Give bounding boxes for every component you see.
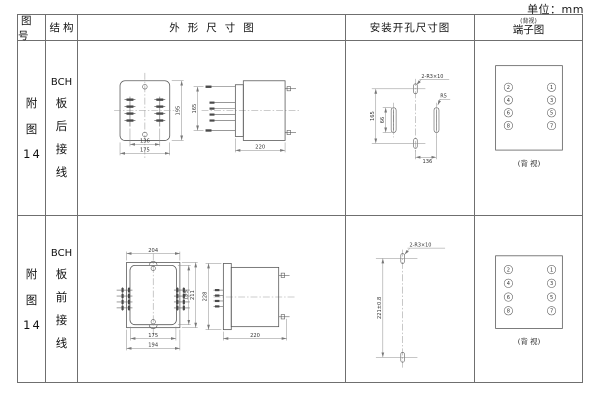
header-outline: 外形尺寸图 — [78, 15, 346, 41]
structure-char: 接 — [56, 312, 68, 328]
dim-slot: 66 — [380, 117, 386, 124]
svg-text:6: 6 — [507, 111, 510, 117]
dim-side-height: 228 — [203, 292, 209, 302]
outline-diagram-front-wiring: 204 175 194 195 211 — [78, 216, 345, 382]
dim-width-top: 204 — [148, 248, 158, 254]
side-view: 165 220 — [192, 81, 299, 153]
front-view: 204 175 194 195 211 — [117, 248, 198, 351]
dim-vertical: 221±0.8 — [377, 297, 383, 319]
figure-label: 附 — [26, 95, 38, 111]
rear-view-caption: (背 视) — [518, 159, 541, 168]
dim-width-outer: 194 — [148, 343, 158, 349]
rear-view-caption: (背 视) — [518, 337, 541, 346]
dim-height: 195 — [176, 106, 182, 116]
svg-text:1: 1 — [550, 85, 553, 91]
svg-text:2: 2 — [507, 267, 510, 273]
mounting-holes-diagram-front: 2-R3×10 221±0.8 — [346, 216, 474, 382]
structure-char: 线 — [56, 164, 68, 180]
structure-char: 接 — [56, 141, 68, 157]
label-holes: 2-R3×10 — [410, 243, 432, 249]
dim-height-outer: 211 — [190, 290, 196, 300]
header-terminal: (背视) 端子图 — [475, 15, 582, 41]
figure-number: 14 — [21, 147, 42, 161]
dim-mount-height: 165 — [370, 111, 376, 121]
terminal-diagram-rear-view: 2 4 6 8 1 3 5 7 (背 视) — [475, 41, 582, 215]
outline-diagram-rear-wiring: 136 175 195 — [78, 41, 345, 215]
row2-mounting-cell: 2-R3×10 221±0.8 — [346, 216, 475, 382]
structure-char: 后 — [56, 118, 68, 134]
row1-structure-cell: BCH 板 后 接 线 — [46, 41, 78, 216]
header-figure: 图号 — [18, 15, 46, 41]
svg-text:4: 4 — [507, 281, 510, 287]
svg-text:2: 2 — [507, 85, 510, 91]
row1-figure-cell: 附 图 14 — [18, 41, 46, 216]
structure-model: BCH — [51, 77, 72, 88]
label-holes: 2-R3×10 — [421, 74, 443, 80]
row1-outline-cell: 136 175 195 — [78, 41, 346, 216]
terminal-circles: 2 4 6 8 1 3 5 7 — [504, 265, 556, 315]
svg-text:4: 4 — [507, 98, 510, 104]
row2-terminal-cell: 2 4 6 8 1 3 5 7 (背 视) — [475, 216, 582, 382]
drawing-table: 图号 结构 外形尺寸图 安装开孔尺寸图 (背视) 端子图 附 图 14 BCH … — [17, 14, 583, 383]
figure-label: 图 — [26, 292, 38, 308]
dim-depth: 220 — [250, 333, 260, 339]
dim-width-inner: 175 — [148, 333, 158, 339]
row2-outline-cell: 204 175 194 195 211 — [78, 216, 346, 382]
structure-model: BCH — [51, 248, 72, 259]
figure-label: 附 — [26, 266, 38, 282]
svg-text:3: 3 — [550, 281, 553, 287]
figure-number: 14 — [21, 318, 42, 332]
structure-char: 板 — [56, 266, 68, 282]
header-terminal-label: 端子图 — [513, 22, 545, 37]
row1-terminal-cell: 2 4 6 8 1 3 5 7 (背 视) — [475, 41, 582, 216]
structure-char: 板 — [56, 95, 68, 111]
terminal-diagram-rear-view: 2 4 6 8 1 3 5 7 (背 视) — [475, 216, 582, 382]
svg-text:7: 7 — [550, 309, 553, 315]
row1-mounting-cell: 2-R3×10 66 165 R5 136 — [346, 41, 475, 216]
side-view: 228 220 — [203, 263, 295, 340]
header-structure: 结构 — [46, 15, 78, 41]
dim-height-inner: 195 — [183, 290, 189, 300]
svg-text:8: 8 — [507, 123, 510, 129]
row2-figure-cell: 附 图 14 — [18, 216, 46, 382]
header-mounting: 安装开孔尺寸图 — [346, 15, 475, 41]
svg-text:5: 5 — [550, 111, 553, 117]
figure-label: 图 — [26, 121, 38, 137]
svg-text:7: 7 — [550, 123, 553, 129]
dim-width-outer: 175 — [140, 148, 150, 154]
structure-char: 线 — [56, 335, 68, 351]
terminal-circles: 2 4 6 8 1 3 5 7 — [504, 83, 556, 130]
svg-text:5: 5 — [550, 295, 553, 301]
dim-side-height: 165 — [192, 104, 198, 114]
mounting-holes-diagram-rear: 2-R3×10 66 165 R5 136 — [346, 41, 474, 215]
row2-structure-cell: BCH 板 前 接 线 — [46, 216, 78, 382]
svg-text:1: 1 — [550, 267, 553, 273]
dim-width-inner: 136 — [140, 139, 150, 145]
svg-text:8: 8 — [507, 309, 510, 315]
dim-depth: 220 — [255, 145, 265, 151]
label-radius: R5 — [440, 94, 447, 100]
svg-text:3: 3 — [550, 98, 553, 104]
structure-char: 前 — [56, 289, 68, 305]
svg-text:6: 6 — [507, 295, 510, 301]
dim-mount-width: 136 — [422, 159, 432, 165]
front-view: 136 175 195 — [114, 73, 184, 159]
